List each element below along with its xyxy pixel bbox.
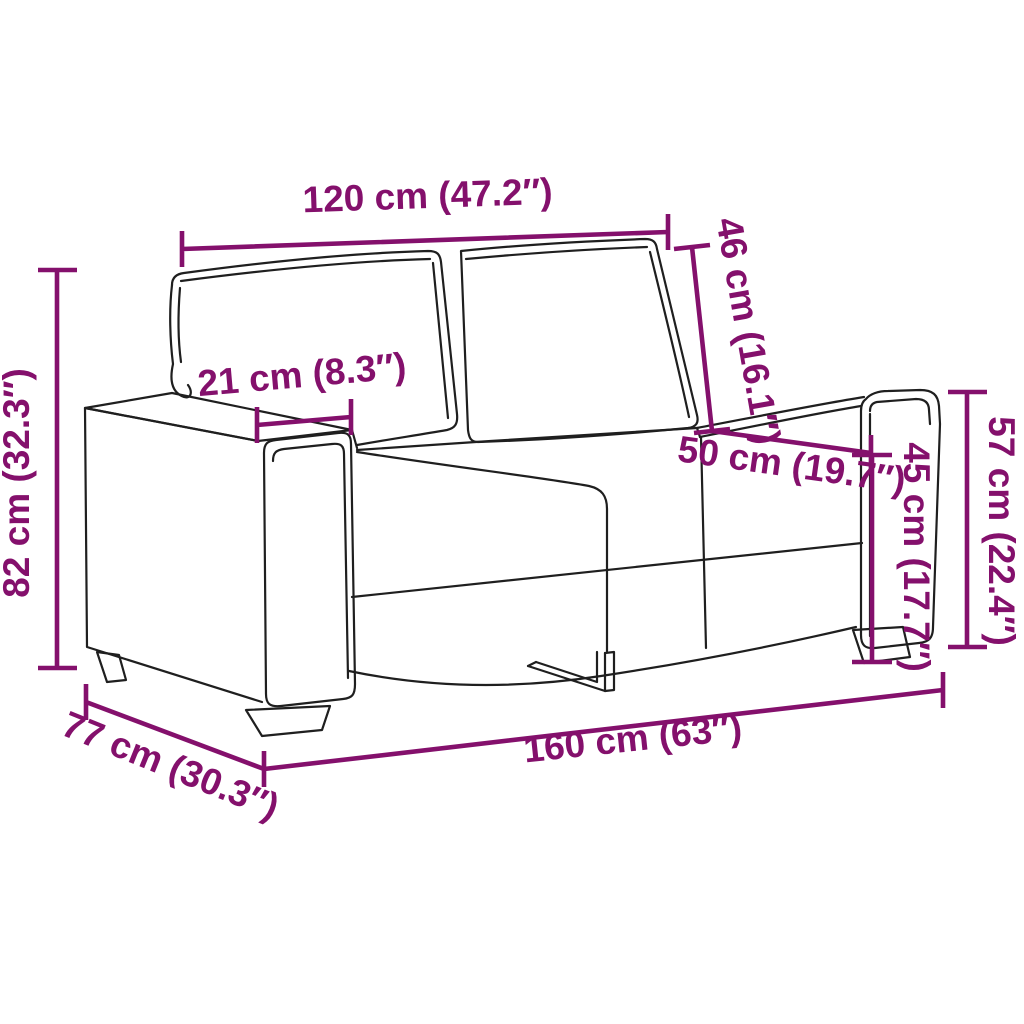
front-left-leg — [246, 706, 330, 736]
dimension-armrest-height: 57 cm (22.4″) — [948, 392, 1022, 647]
base-bottom-edge — [349, 627, 856, 685]
dimension-label-armrest-height: 57 cm (22.4″) — [981, 416, 1022, 646]
dimension-annotations: 120 cm (47.2″) 46 cm (16.1″) 21 cm (8.3″… — [0, 171, 1022, 828]
dimension-label-back-cushion-height: 46 cm (16.1″) — [708, 214, 788, 447]
left-back-cushion-side-edge — [170, 285, 191, 397]
right-back-cushion-outline — [461, 239, 698, 442]
seat-front-curve — [357, 452, 607, 651]
dimension-line — [38, 270, 77, 668]
left-armrest-front-panel — [264, 433, 355, 706]
dimension-total-depth: 77 cm (30.3″) — [57, 684, 285, 827]
sofa-dimension-diagram: 120 cm (47.2″) 46 cm (16.1″) 21 cm (8.3″… — [0, 0, 1024, 1024]
dimension-total-width: 160 cm (63″) — [264, 672, 943, 770]
left-back-cushion-piping-top — [181, 259, 430, 281]
dimension-label-back-width: 120 cm (47.2″) — [302, 171, 553, 221]
dimension-armrest-width: 21 cm (8.3″) — [196, 345, 408, 443]
dimension-back-cushion-height: 46 cm (16.1″) — [674, 214, 788, 447]
right-armrest-panel-piping — [870, 399, 930, 424]
dimension-total-height: 82 cm (32.3″) — [0, 270, 77, 668]
seat-back-edge — [357, 428, 697, 450]
dimension-label-total-height: 82 cm (32.3″) — [0, 368, 37, 598]
left-armrest-panel-piping — [273, 444, 348, 678]
left-back-cushion-piping-right — [433, 263, 448, 418]
dimension-label-armrest-width: 21 cm (8.3″) — [196, 345, 408, 404]
sofa-dimension-diagram-page: 120 cm (47.2″) 46 cm (16.1″) 21 cm (8.3″… — [0, 0, 1024, 1024]
dimension-back-width: 120 cm (47.2″) — [182, 171, 668, 267]
left-back-cushion-piping-side — [179, 288, 181, 362]
dimension-label-seat-height: 45 cm (17.7″) — [896, 442, 937, 672]
left-armrest-outer-face — [85, 408, 262, 702]
sled-leg-cap — [528, 662, 536, 666]
sled-leg-front-bar — [605, 652, 614, 691]
back-left-leg — [97, 652, 126, 682]
dimension-label-total-width: 160 cm (63″) — [522, 707, 744, 771]
left-back-cushion-outline — [172, 251, 457, 445]
right-back-cushion-piping-right — [650, 252, 689, 417]
